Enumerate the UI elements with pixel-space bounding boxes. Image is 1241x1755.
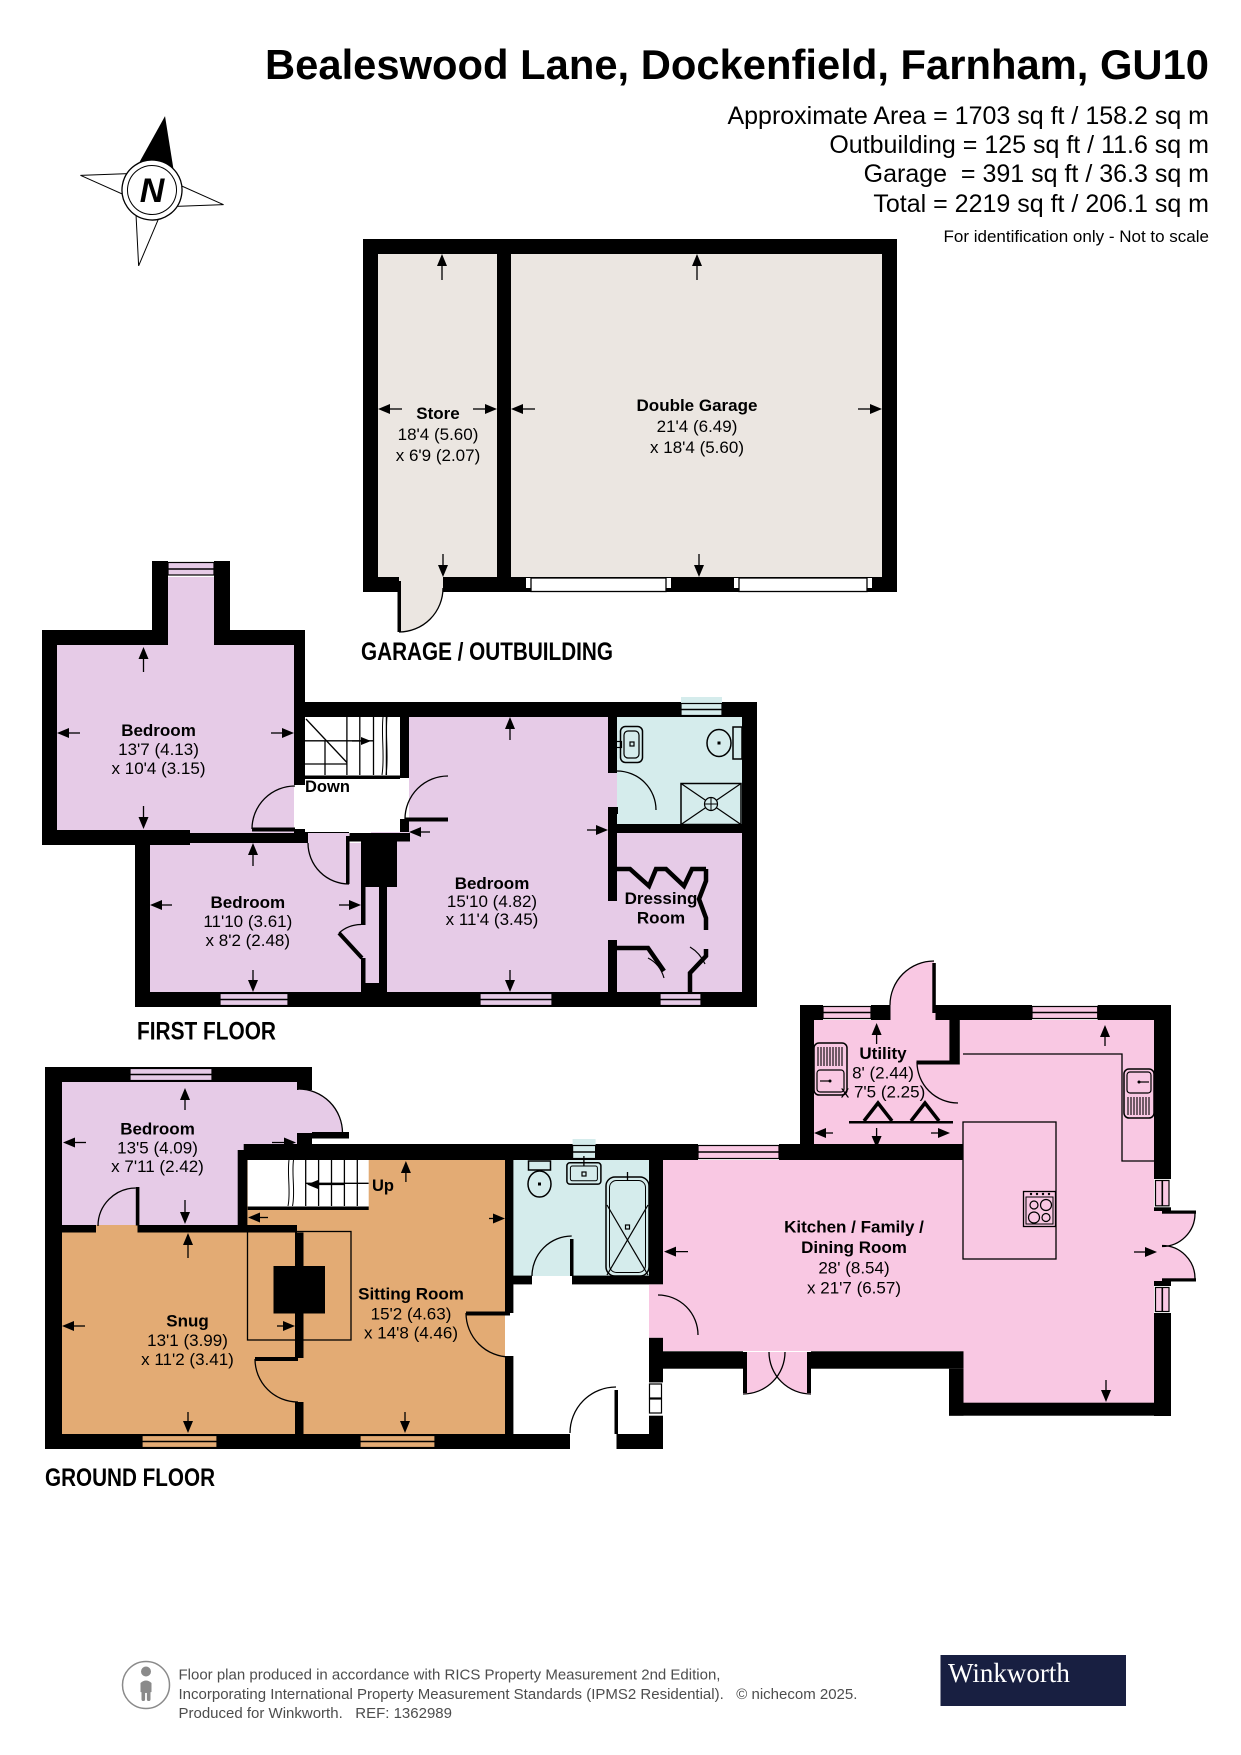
svg-text:Bealeswood Lane, Dockenfield,: Bealeswood Lane, Dockenfield, Farnham, G… [265,41,1209,88]
svg-text:Total = 2219 sq ft / 206.1 sq: Total = 2219 sq ft / 206.1 sq m [873,190,1209,218]
svg-text:Utility: Utility [859,1044,907,1063]
svg-text:Double Garage: Double Garage [637,396,758,415]
svg-text:Kitchen / Family /: Kitchen / Family / [784,1218,924,1237]
svg-text:Bedroom: Bedroom [121,721,196,740]
svg-text:GROUND FLOOR: GROUND FLOOR [45,1464,215,1492]
svg-text:Store: Store [416,404,459,423]
svg-text:x 7'5 (2.25): x 7'5 (2.25) [841,1083,926,1102]
svg-text:28' (8.54): 28' (8.54) [818,1258,889,1277]
svg-text:Floor plan produced in accorda: Floor plan produced in accordance with R… [179,1667,721,1684]
svg-text:Outbuilding = 125 sq ft / 11.6: Outbuilding = 125 sq ft / 11.6 sq m [829,131,1209,159]
svg-text:x 7'11 (2.42): x 7'11 (2.42) [111,1157,204,1176]
svg-text:Sitting Room: Sitting Room [358,1285,464,1304]
svg-text:Room: Room [637,909,685,928]
svg-text:x 6'9 (2.07): x 6'9 (2.07) [396,446,481,465]
svg-text:x 8'2 (2.48): x 8'2 (2.48) [206,931,291,950]
svg-text:Winkworth: Winkworth [948,1658,1070,1688]
svg-text:FIRST FLOOR: FIRST FLOOR [137,1018,276,1046]
svg-text:13'5 (4.09): 13'5 (4.09) [117,1139,198,1158]
svg-text:13'1 (3.99): 13'1 (3.99) [147,1331,228,1350]
svg-text:Incorporating International Pr: Incorporating International Property Mea… [179,1686,858,1703]
svg-text:Bedroom: Bedroom [455,874,530,893]
svg-text:18'4 (5.60): 18'4 (5.60) [398,425,479,444]
svg-text:8' (2.44): 8' (2.44) [852,1064,914,1083]
svg-text:For identification only - Not: For identification only - Not to scale [943,227,1209,246]
svg-text:N: N [140,172,166,210]
svg-text:x 11'4 (3.45): x 11'4 (3.45) [446,910,539,929]
svg-text:Dining Room: Dining Room [801,1238,907,1257]
svg-text:Garage = 391 sq ft / 36.3 sq: Garage = 391 sq ft / 36.3 sq m [864,160,1209,188]
svg-text:Bedroom: Bedroom [120,1120,195,1139]
svg-text:11'10 (3.61): 11'10 (3.61) [203,912,292,931]
svg-text:15'10 (4.82): 15'10 (4.82) [447,892,537,911]
svg-text:Down: Down [305,778,350,796]
svg-text:x 21'7 (6.57): x 21'7 (6.57) [807,1279,901,1298]
svg-text:Bedroom: Bedroom [210,893,285,912]
svg-text:Produced for Winkworth. REF:: Produced for Winkworth. REF: 1362989 [179,1705,452,1722]
svg-text:21'4 (6.49): 21'4 (6.49) [657,417,738,436]
svg-text:Approximate Area = 1703 sq ft: Approximate Area = 1703 sq ft / 158.2 sq… [727,102,1209,130]
svg-text:GARAGE / OUTBUILDING: GARAGE / OUTBUILDING [361,638,613,666]
svg-text:x 10'4 (3.15): x 10'4 (3.15) [112,759,206,778]
svg-text:15'2 (4.63): 15'2 (4.63) [371,1305,452,1324]
svg-text:x 18'4 (5.60): x 18'4 (5.60) [650,438,744,457]
svg-text:x 14'8 (4.46): x 14'8 (4.46) [364,1324,458,1343]
svg-text:13'7 (4.13): 13'7 (4.13) [118,740,199,759]
svg-text:Up: Up [372,1177,394,1195]
svg-text:Snug: Snug [166,1312,209,1331]
svg-text:Dressing: Dressing [625,889,698,908]
svg-text:x 11'2 (3.41): x 11'2 (3.41) [141,1350,234,1369]
